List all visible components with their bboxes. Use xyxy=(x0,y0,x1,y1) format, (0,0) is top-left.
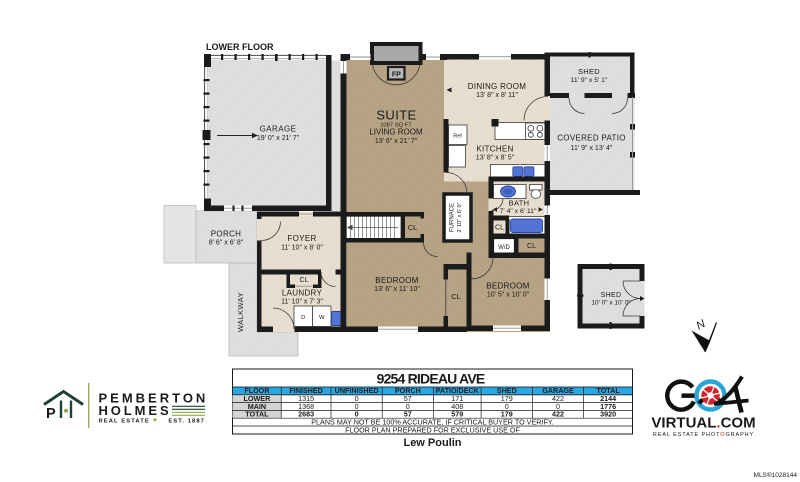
svg-text:COVERED PATIO: COVERED PATIO xyxy=(557,134,626,143)
svg-text:11' 9" x 13' 4": 11' 9" x 13' 4" xyxy=(571,145,613,152)
svg-text:LOWER FLOOR: LOWER FLOOR xyxy=(206,42,274,52)
svg-text:FURNACE: FURNACE xyxy=(450,203,456,232)
svg-text:D: D xyxy=(301,315,305,321)
svg-text:BATH: BATH xyxy=(509,199,530,208)
svg-text:KITCHEN: KITCHEN xyxy=(476,145,513,154)
svg-text:Lew Poulin: Lew Poulin xyxy=(403,437,461,449)
svg-text:11' 10" x 8' 0": 11' 10" x 8' 0" xyxy=(281,245,323,252)
svg-text:FP: FP xyxy=(392,71,401,78)
svg-text:REAL ESTATE: REAL ESTATE xyxy=(99,419,150,425)
svg-text:VIRTUAL.COM: VIRTUAL.COM xyxy=(651,415,755,432)
svg-text:WALKWAY: WALKWAY xyxy=(236,292,245,332)
svg-text:11' 9" x 5' 1": 11' 9" x 5' 1" xyxy=(571,77,608,84)
svg-text:TOTAL: TOTAL xyxy=(245,410,269,419)
svg-text:MLS®1028144: MLS®1028144 xyxy=(754,471,798,479)
svg-text:SUITE: SUITE xyxy=(376,108,416,123)
svg-text:FOYER: FOYER xyxy=(287,234,316,243)
svg-text:10' 5" x 10' 0": 10' 5" x 10' 0" xyxy=(487,292,530,299)
svg-text:13' 8" x 8' 5": 13' 8" x 8' 5" xyxy=(476,155,515,162)
svg-text:10' 0" x 10' 0": 10' 0" x 10' 0" xyxy=(591,300,631,307)
svg-text:CL: CL xyxy=(451,292,461,301)
svg-text:EST. 1887: EST. 1887 xyxy=(168,419,205,425)
svg-text:BEDROOM: BEDROOM xyxy=(375,276,418,285)
svg-text:422: 422 xyxy=(552,410,564,419)
svg-text:W: W xyxy=(319,315,325,321)
svg-text:CL: CL xyxy=(495,225,504,232)
svg-text:8' 6" x 6' 8": 8' 6" x 6' 8" xyxy=(209,240,244,247)
svg-text:W/D: W/D xyxy=(498,245,510,251)
svg-text:LIVING ROOM: LIVING ROOM xyxy=(369,128,423,137)
svg-text:3920: 3920 xyxy=(600,410,616,419)
svg-text:9254 RIDEAU AVE: 9254 RIDEAU AVE xyxy=(377,371,485,387)
svg-text:SHED: SHED xyxy=(578,67,600,76)
svg-text:P: P xyxy=(46,406,56,422)
svg-text:PORCH: PORCH xyxy=(211,230,241,239)
svg-text:GARAGE: GARAGE xyxy=(260,125,297,134)
svg-text:2' 10" x 6' 0": 2' 10" x 6' 0" xyxy=(457,202,463,232)
svg-text:CL: CL xyxy=(527,243,536,250)
svg-text:CL: CL xyxy=(300,277,309,284)
svg-text:REAL ESTATE PHOTOGRAPHY: REAL ESTATE PHOTOGRAPHY xyxy=(653,432,754,438)
svg-text:SHED: SHED xyxy=(601,292,622,299)
svg-text:11' 10" x 7' 3": 11' 10" x 7' 3" xyxy=(281,299,323,306)
svg-text:FLOOR PLAN PREPARED FOR EXCLUS: FLOOR PLAN PREPARED FOR EXCLUSIVE USE OF xyxy=(345,426,520,435)
svg-text:CL: CL xyxy=(408,223,418,232)
svg-text:Ref: Ref xyxy=(453,133,462,139)
svg-text:13' 6" x 21' 7": 13' 6" x 21' 7" xyxy=(375,138,418,145)
svg-text:19' 0" x 21' 7": 19' 0" x 21' 7" xyxy=(257,135,300,142)
svg-text:BEDROOM: BEDROOM xyxy=(486,282,529,291)
svg-text:13' 6" x 11' 10": 13' 6" x 11' 10" xyxy=(374,286,420,293)
svg-text:DINING ROOM: DINING ROOM xyxy=(468,82,526,91)
svg-text:HOLMES: HOLMES xyxy=(99,403,172,418)
svg-text:7' 4" x 6' 11": 7' 4" x 6' 11" xyxy=(500,208,537,215)
svg-text:LAUNDRY: LAUNDRY xyxy=(282,289,323,298)
svg-text:13' 8" x 8' 11": 13' 8" x 8' 11" xyxy=(476,92,518,99)
